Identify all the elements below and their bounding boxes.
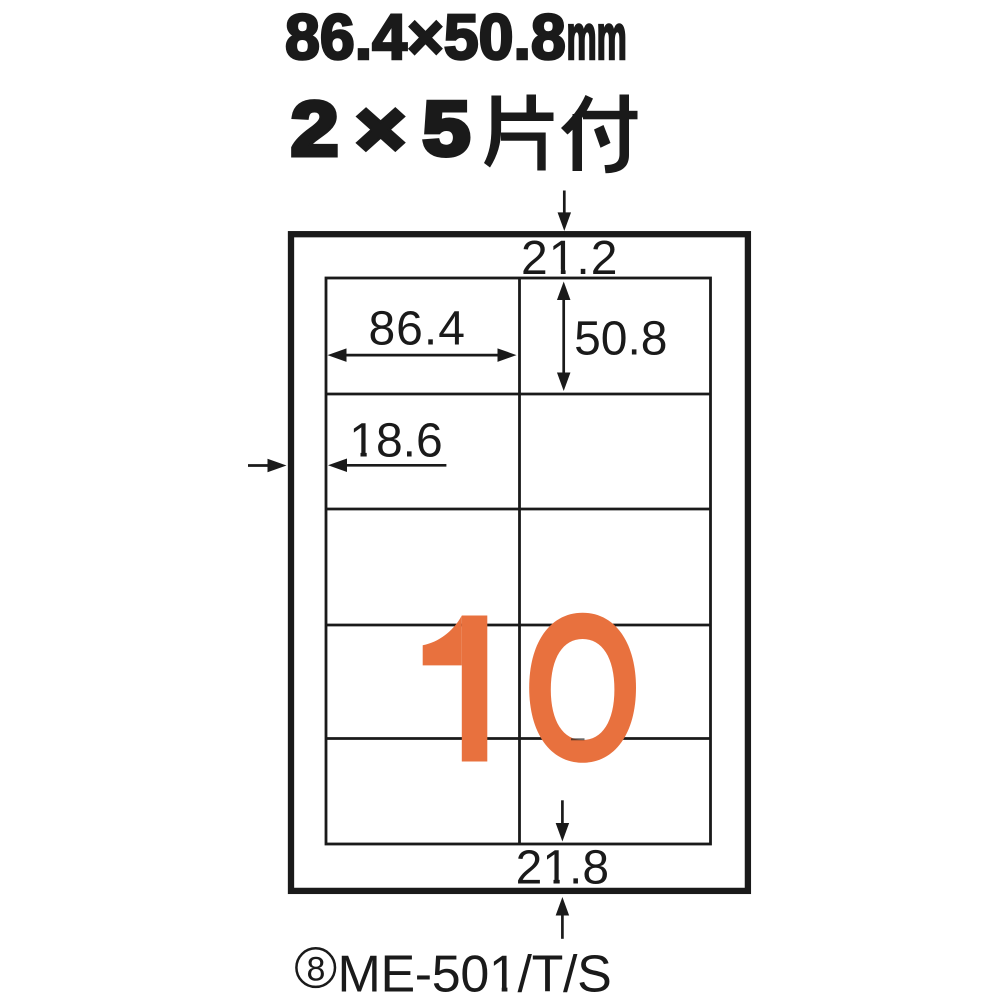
svg-text:21.8: 21.8 (516, 842, 609, 895)
svg-text:18.6: 18.6 (349, 415, 442, 468)
svg-text:8: 8 (307, 951, 326, 989)
svg-text:2×5: 2×5 (291, 87, 487, 172)
svg-text:ME-501/T/S: ME-501/T/S (338, 946, 612, 1000)
svg-text:86.4: 86.4 (368, 303, 465, 356)
svg-text:50.8: 50.8 (574, 313, 667, 366)
svg-text:mm: mm (567, 2, 627, 73)
svg-text:86.4×50.8: 86.4×50.8 (285, 2, 566, 73)
svg-text:21.2: 21.2 (521, 232, 618, 285)
